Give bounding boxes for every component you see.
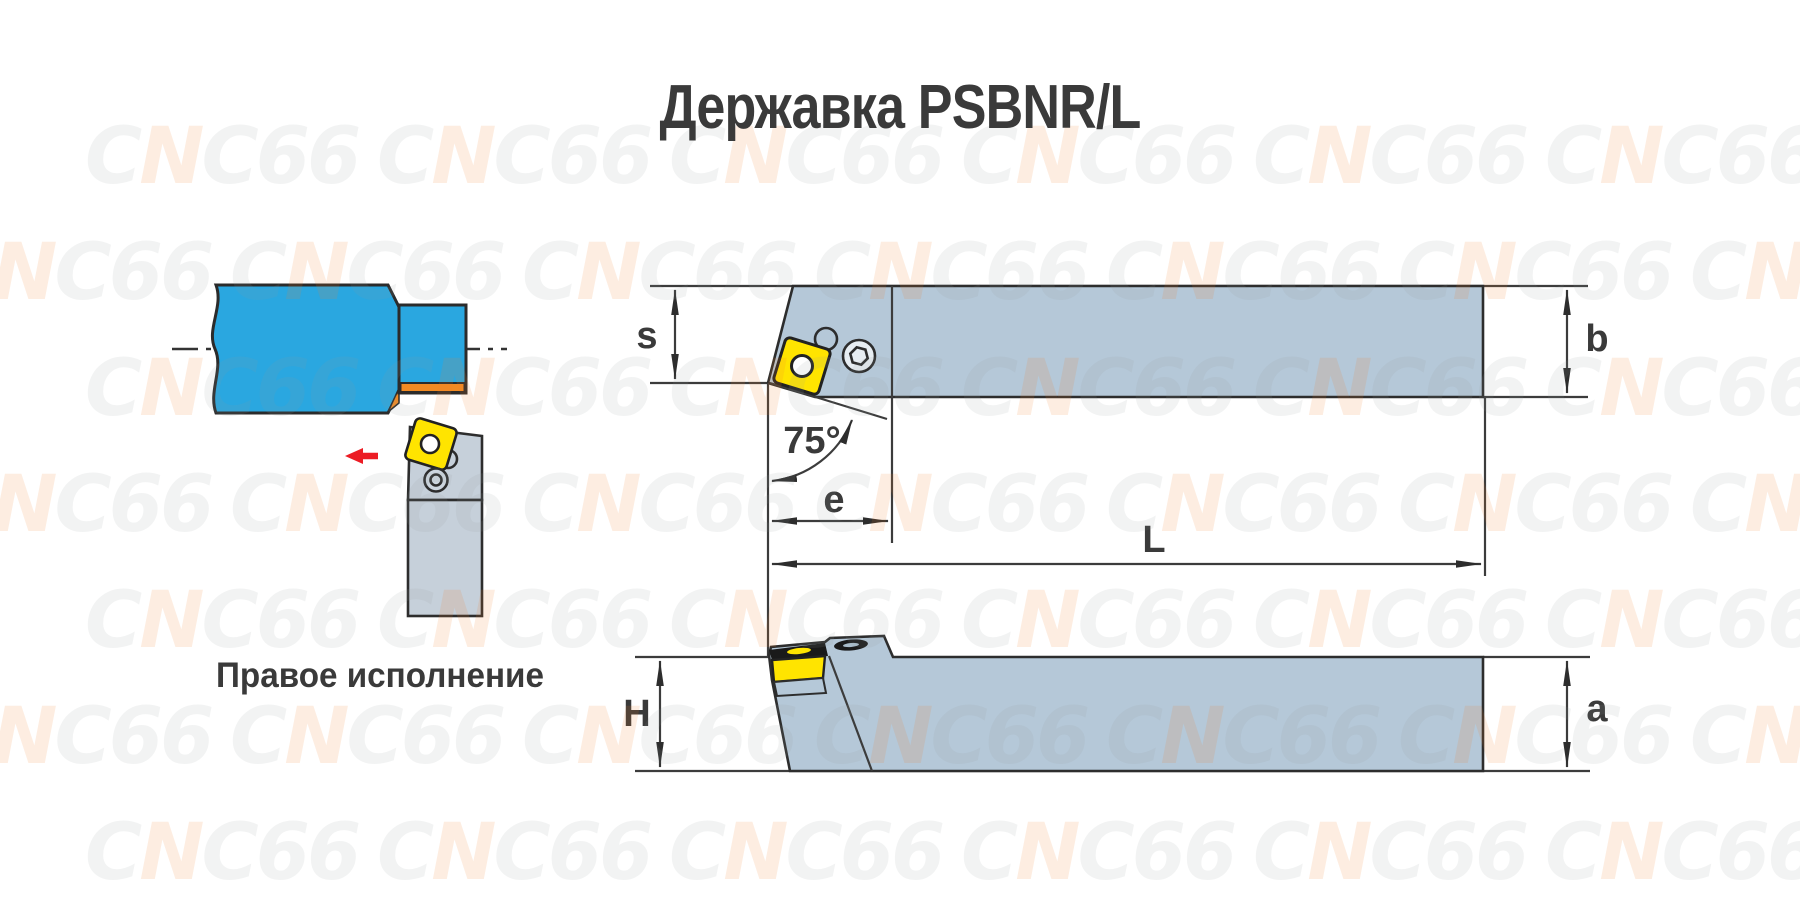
dim-label-e: e: [823, 479, 844, 521]
dim-label-a: a: [1586, 688, 1608, 730]
insert-hole: [421, 435, 439, 453]
hex-screw: [843, 340, 875, 372]
feed-direction-arrow: [345, 448, 378, 464]
dim-label-b: b: [1585, 318, 1608, 360]
workpiece: [212, 285, 399, 413]
holder-body-plan: [768, 286, 1483, 397]
plan-view: s b 75° e L: [636, 286, 1608, 658]
insert-seat: [774, 678, 826, 696]
turning-illustration: [172, 285, 507, 616]
page-title: Державка PSBNR/L: [144, 72, 1656, 143]
clamp-screw-hole: [431, 475, 442, 486]
holder-shank: [408, 500, 482, 616]
dim-label-H: H: [623, 693, 650, 735]
angle-label: 75°: [783, 420, 840, 462]
orientation-caption: Правое исполнение: [216, 656, 544, 696]
workpiece-turned-step: [399, 305, 466, 393]
dim-label-L: L: [1142, 519, 1165, 561]
side-view: H a: [623, 636, 1608, 771]
insert-hole-plan: [792, 356, 813, 377]
machined-surface: [401, 383, 465, 392]
diagram-canvas: CNC66CNC66CNC66CNC66CNC66CNC66CNC66CNC66…: [0, 0, 1800, 917]
dim-label-s: s: [636, 315, 657, 357]
holder-body-side: [769, 636, 1483, 771]
